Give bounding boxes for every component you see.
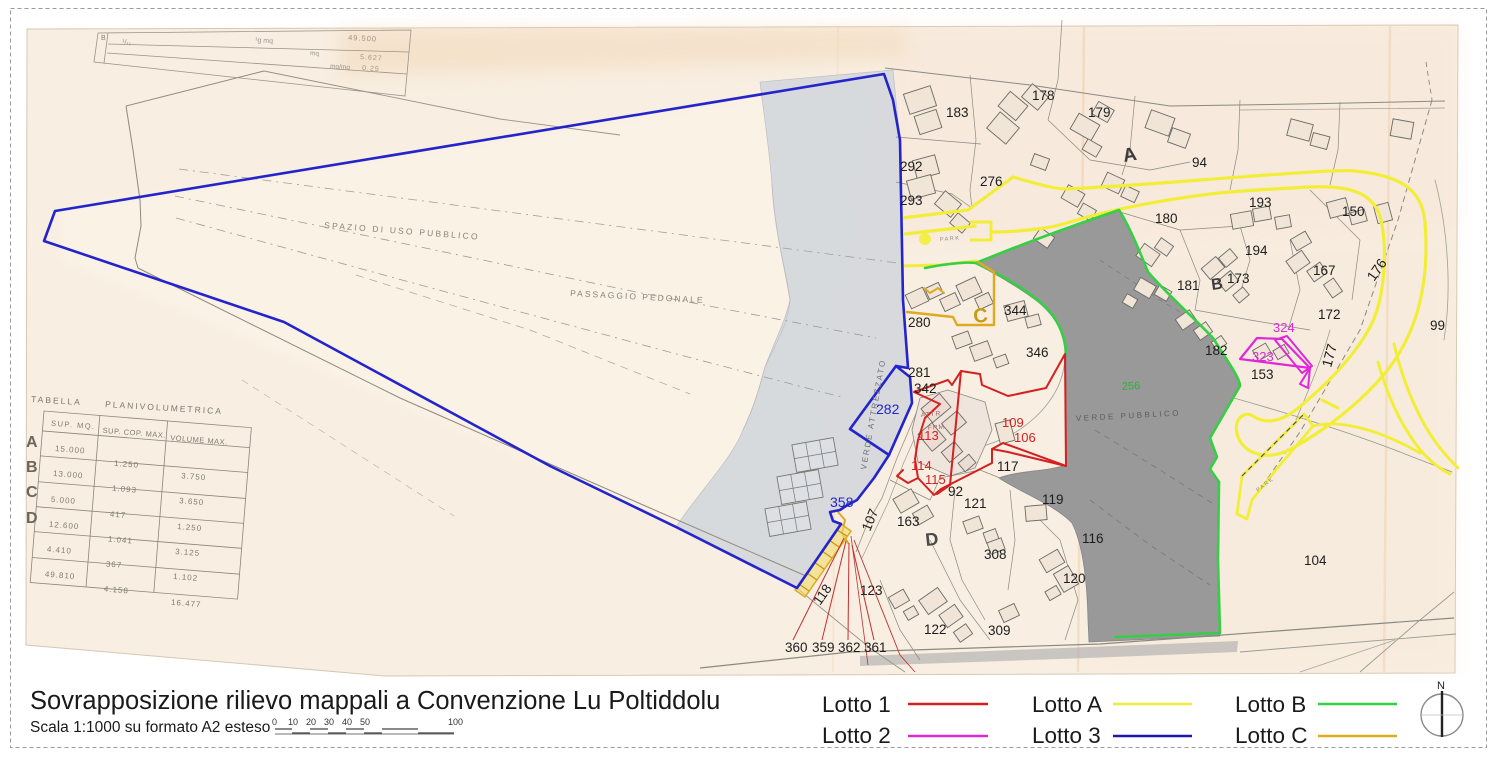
svg-text:Lotto 2: Lotto 2 [822,723,891,748]
svg-text:Scala 1:1000 su formato A2 est: Scala 1:1000 su formato A2 esteso [30,719,270,736]
svg-text:178: 178 [1032,88,1055,103]
svg-text:292: 292 [900,159,923,174]
svg-text:Sovrapposizione rilievo mappal: Sovrapposizione rilievo mappali a Conven… [30,687,720,715]
svg-text:114: 114 [911,458,932,473]
svg-text:116: 116 [1082,531,1104,546]
svg-text:0.25: 0.25 [362,65,380,73]
svg-text:30: 30 [324,717,334,727]
svg-text:293: 293 [900,193,923,208]
svg-text:Lotto 3: Lotto 3 [1032,723,1101,748]
svg-text:193: 193 [1249,195,1272,210]
svg-text:94: 94 [1192,155,1208,170]
svg-text:367: 367 [106,559,123,569]
svg-text:0: 0 [272,717,277,727]
svg-text:256: 256 [1122,380,1141,393]
svg-text:109: 109 [1002,415,1024,430]
svg-text:150: 150 [1342,204,1365,219]
svg-text:A: A [26,434,38,451]
svg-text:308: 308 [984,547,1007,562]
svg-text:324: 324 [1273,320,1295,335]
svg-text:180: 180 [1155,211,1178,226]
svg-text:B: B [101,35,106,42]
svg-text:Lotto A: Lotto A [1032,692,1102,717]
svg-text:99: 99 [1430,318,1445,333]
svg-text:10: 10 [288,717,298,727]
svg-text:182: 182 [1205,343,1228,358]
svg-text:179: 179 [1088,105,1111,120]
svg-text:276: 276 [980,174,1003,189]
svg-text:106: 106 [1014,430,1036,445]
svg-text:C: C [972,305,989,328]
svg-text:C: C [26,484,38,501]
svg-text:Lotto B: Lotto B [1235,692,1306,717]
svg-text:B: B [26,459,38,476]
svg-text:342: 342 [914,381,937,396]
svg-text:119: 119 [1042,492,1064,507]
svg-text:120: 120 [1063,571,1086,586]
svg-text:346: 346 [1026,345,1049,360]
svg-text:104: 104 [1304,553,1327,568]
svg-text:360: 360 [785,640,808,655]
svg-text:417: 417 [110,510,127,520]
svg-text:344: 344 [1004,303,1027,318]
svg-text:123: 123 [860,583,883,598]
svg-text:115: 115 [925,472,946,487]
svg-text:167: 167 [1313,263,1336,278]
svg-text:mq: mq [310,50,320,58]
svg-text:mq/mq: mq/mq [330,63,351,71]
svg-text:¹/₁₁: ¹/₁₁ [122,39,132,47]
svg-text:163: 163 [897,514,920,529]
svg-text:194: 194 [1245,243,1268,258]
svg-text:92: 92 [948,484,963,499]
svg-text:49.500: 49.500 [348,33,377,44]
svg-text:FRM: FRM [928,424,946,432]
svg-text:359: 359 [812,640,835,655]
svg-text:B: B [1210,276,1224,294]
svg-text:N: N [1437,680,1445,692]
svg-text:Lotto C: Lotto C [1235,723,1308,748]
svg-text:20: 20 [306,717,316,727]
svg-text:361: 361 [864,640,887,655]
svg-text:50: 50 [360,717,370,727]
svg-text:153: 153 [1251,367,1274,382]
svg-text:D: D [924,529,939,550]
svg-text:181: 181 [1177,278,1200,293]
svg-text:183: 183 [946,105,969,120]
svg-text:121: 121 [964,496,987,511]
svg-text:173: 173 [1227,271,1250,286]
svg-text:40: 40 [342,717,352,727]
svg-text:Lotto 1: Lotto 1 [822,692,891,717]
svg-text:309: 309 [988,623,1011,638]
svg-text:¹g mq: ¹g mq [255,37,273,45]
svg-text:280: 280 [908,315,931,330]
svg-text:100: 100 [448,717,463,727]
svg-text:122: 122 [924,622,947,637]
svg-text:323: 323 [1252,349,1274,364]
svg-text:117: 117 [997,459,1019,474]
svg-text:172: 172 [1318,307,1341,322]
svg-text:358: 358 [830,494,854,510]
svg-text:D: D [26,510,38,527]
svg-text:281: 281 [908,365,931,380]
svg-text:362: 362 [838,640,861,655]
